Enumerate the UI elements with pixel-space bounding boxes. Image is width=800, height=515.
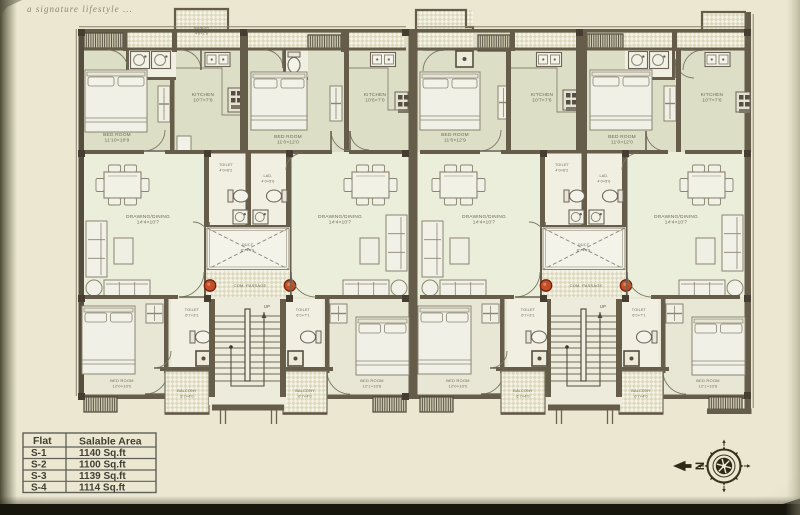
svg-text:6′7×4′0: 6′7×4′0 bbox=[634, 394, 648, 398]
svg-text:a signature lifestyle ...: a signature lifestyle ... bbox=[27, 4, 133, 14]
svg-text:DUCT: DUCT bbox=[242, 242, 254, 247]
svg-text:S-3: S-3 bbox=[31, 471, 47, 482]
svg-text:6′7×3′1: 6′7×3′1 bbox=[185, 313, 199, 317]
svg-text:BED ROOM: BED ROOM bbox=[360, 378, 383, 383]
svg-text:12′1×10′6: 12′1×10′6 bbox=[699, 383, 719, 388]
svg-text:6′7×4′0: 6′7×4′0 bbox=[516, 394, 530, 398]
svg-text:UP: UP bbox=[264, 304, 270, 309]
svg-text:14′4×10′7: 14′4×10′7 bbox=[329, 219, 352, 225]
svg-text:14′4×10′7: 14′4×10′7 bbox=[137, 219, 160, 225]
svg-text:LAD.: LAD. bbox=[264, 174, 273, 178]
svg-text:11′10×10′9: 11′10×10′9 bbox=[105, 137, 130, 143]
svg-text:TOILET: TOILET bbox=[219, 163, 234, 167]
svg-text:4′0×5′6: 4′0×5′6 bbox=[597, 179, 610, 183]
svg-text:BED ROOM: BED ROOM bbox=[103, 132, 131, 138]
svg-text:S-1: S-1 bbox=[31, 448, 47, 459]
svg-text:BALCONY: BALCONY bbox=[177, 389, 197, 393]
svg-text:BALCONY: BALCONY bbox=[631, 389, 651, 393]
svg-text:1100 Sq.ft: 1100 Sq.ft bbox=[79, 460, 126, 471]
svg-text:KITCHEN: KITCHEN bbox=[531, 92, 554, 98]
svg-text:DRAWING/DINING: DRAWING/DINING bbox=[462, 214, 506, 220]
svg-text:N: N bbox=[693, 462, 705, 470]
svg-text:6′7×4′0: 6′7×4′0 bbox=[180, 394, 194, 398]
svg-text:Flat: Flat bbox=[33, 435, 52, 447]
svg-text:LAD.: LAD. bbox=[600, 174, 609, 178]
svg-text:BALCONY: BALCONY bbox=[513, 389, 533, 393]
svg-text:10′6×7′0: 10′6×7′0 bbox=[365, 97, 385, 103]
svg-text:S-4: S-4 bbox=[31, 482, 47, 493]
svg-text:10′7×7′6: 10′7×7′6 bbox=[702, 97, 722, 103]
svg-text:1139 Sq.ft: 1139 Sq.ft bbox=[79, 471, 126, 482]
svg-text:BED ROOM: BED ROOM bbox=[110, 378, 133, 383]
svg-text:DRAWING/DINING: DRAWING/DINING bbox=[654, 214, 698, 220]
svg-text:COM. PASSAGE: COM. PASSAGE bbox=[570, 283, 603, 288]
svg-text:10′7×7′6: 10′7×7′6 bbox=[193, 97, 213, 103]
svg-text:BED ROOM: BED ROOM bbox=[441, 132, 469, 138]
svg-text:DRAWING/DINING: DRAWING/DINING bbox=[318, 214, 362, 220]
svg-text:Salable Area: Salable Area bbox=[79, 436, 142, 448]
svg-text:11′0×12′0: 11′0×12′0 bbox=[277, 139, 299, 145]
svg-text:1114 Sq.ft: 1114 Sq.ft bbox=[79, 482, 126, 493]
svg-text:DRAWING/DINING: DRAWING/DINING bbox=[126, 214, 170, 220]
svg-text:COM. PASSAGE: COM. PASSAGE bbox=[234, 283, 267, 288]
svg-text:TOILET: TOILET bbox=[296, 308, 311, 312]
svg-text:1140 Sq.ft: 1140 Sq.ft bbox=[79, 448, 126, 459]
svg-text:BALCONY: BALCONY bbox=[295, 389, 315, 393]
svg-text:TOILET: TOILET bbox=[521, 308, 536, 312]
svg-text:12′0×10′0: 12′0×10′0 bbox=[113, 383, 133, 388]
svg-text:KITCHEN: KITCHEN bbox=[364, 92, 387, 98]
svg-text:14′4×10′7: 14′4×10′7 bbox=[665, 219, 688, 225]
svg-text:6′0×7′1: 6′0×7′1 bbox=[296, 313, 310, 317]
svg-text:12′0×10′0: 12′0×10′0 bbox=[449, 383, 469, 388]
svg-text:14′4×10′7: 14′4×10′7 bbox=[473, 219, 496, 225]
svg-text:12′1×10′6: 12′1×10′6 bbox=[363, 383, 383, 388]
svg-text:DUCT: DUCT bbox=[578, 242, 590, 247]
svg-text:6′7×4′0: 6′7×4′0 bbox=[298, 394, 312, 398]
svg-text:TOILET: TOILET bbox=[555, 163, 570, 167]
svg-text:KITCHEN: KITCHEN bbox=[192, 92, 215, 98]
svg-text:KITCHEN: KITCHEN bbox=[701, 92, 724, 98]
svg-text:8′7×4′9: 8′7×4′9 bbox=[241, 247, 255, 252]
svg-text:BED ROOM: BED ROOM bbox=[608, 134, 636, 140]
svg-text:TOILET: TOILET bbox=[185, 308, 200, 312]
svg-text:4′0×6′2: 4′0×6′2 bbox=[219, 168, 232, 172]
svg-text:10′7×7′6: 10′7×7′6 bbox=[532, 97, 552, 103]
svg-text:6′0×7′1: 6′0×7′1 bbox=[632, 313, 646, 317]
svg-text:BED ROOM: BED ROOM bbox=[446, 378, 469, 383]
svg-text:6′7×3′1: 6′7×3′1 bbox=[521, 313, 535, 317]
svg-text:11′6×12′9: 11′6×12′9 bbox=[444, 137, 466, 143]
svg-text:S-2: S-2 bbox=[31, 460, 47, 471]
svg-text:8′7×4′9: 8′7×4′9 bbox=[577, 247, 591, 252]
svg-text:11′0×12′0: 11′0×12′0 bbox=[611, 139, 633, 145]
svg-text:UP: UP bbox=[600, 304, 606, 309]
svg-text:TOILET: TOILET bbox=[632, 308, 647, 312]
svg-text:4′0×6′2: 4′0×6′2 bbox=[555, 168, 568, 172]
svg-text:4′0×5′6: 4′0×5′6 bbox=[261, 179, 274, 183]
svg-text:BED ROOM: BED ROOM bbox=[274, 134, 302, 140]
svg-text:BED ROOM: BED ROOM bbox=[696, 378, 719, 383]
